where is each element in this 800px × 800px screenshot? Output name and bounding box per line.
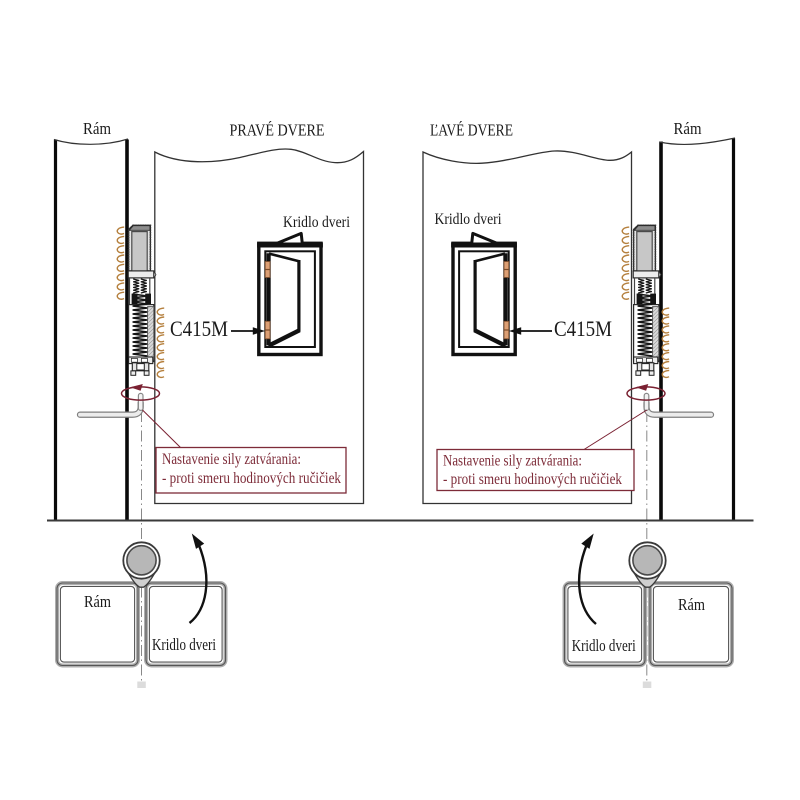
svg-text:Rám: Rám [84, 592, 111, 611]
svg-text:ĽAVÉ DVERE: ĽAVÉ DVERE [430, 121, 513, 140]
svg-text:Nastavenie sily zatvárania:: Nastavenie sily zatvárania: [162, 451, 301, 468]
svg-text:PRAVÉ DVERE: PRAVÉ DVERE [230, 121, 325, 140]
svg-text:- proti smeru hodinových ručič: - proti smeru hodinových ručičiek [443, 471, 622, 488]
svg-text:Kridlo dveri: Kridlo dveri [283, 214, 350, 231]
svg-text:Kridlo dveri: Kridlo dveri [572, 636, 636, 655]
svg-text:Nastavenie sily zatvárania:: Nastavenie sily zatvárania: [443, 453, 582, 470]
svg-text:Rám: Rám [674, 119, 702, 138]
svg-text:C415M: C415M [554, 316, 612, 341]
svg-text:C415M: C415M [170, 316, 228, 341]
svg-text:Kridlo dveri: Kridlo dveri [435, 211, 502, 228]
svg-text:- proti smeru hodinových ručič: - proti smeru hodinových ručičiek [162, 470, 341, 487]
svg-text:Kridlo dveri: Kridlo dveri [152, 635, 216, 654]
svg-text:Rám: Rám [83, 119, 111, 138]
svg-text:Rám: Rám [678, 595, 705, 614]
